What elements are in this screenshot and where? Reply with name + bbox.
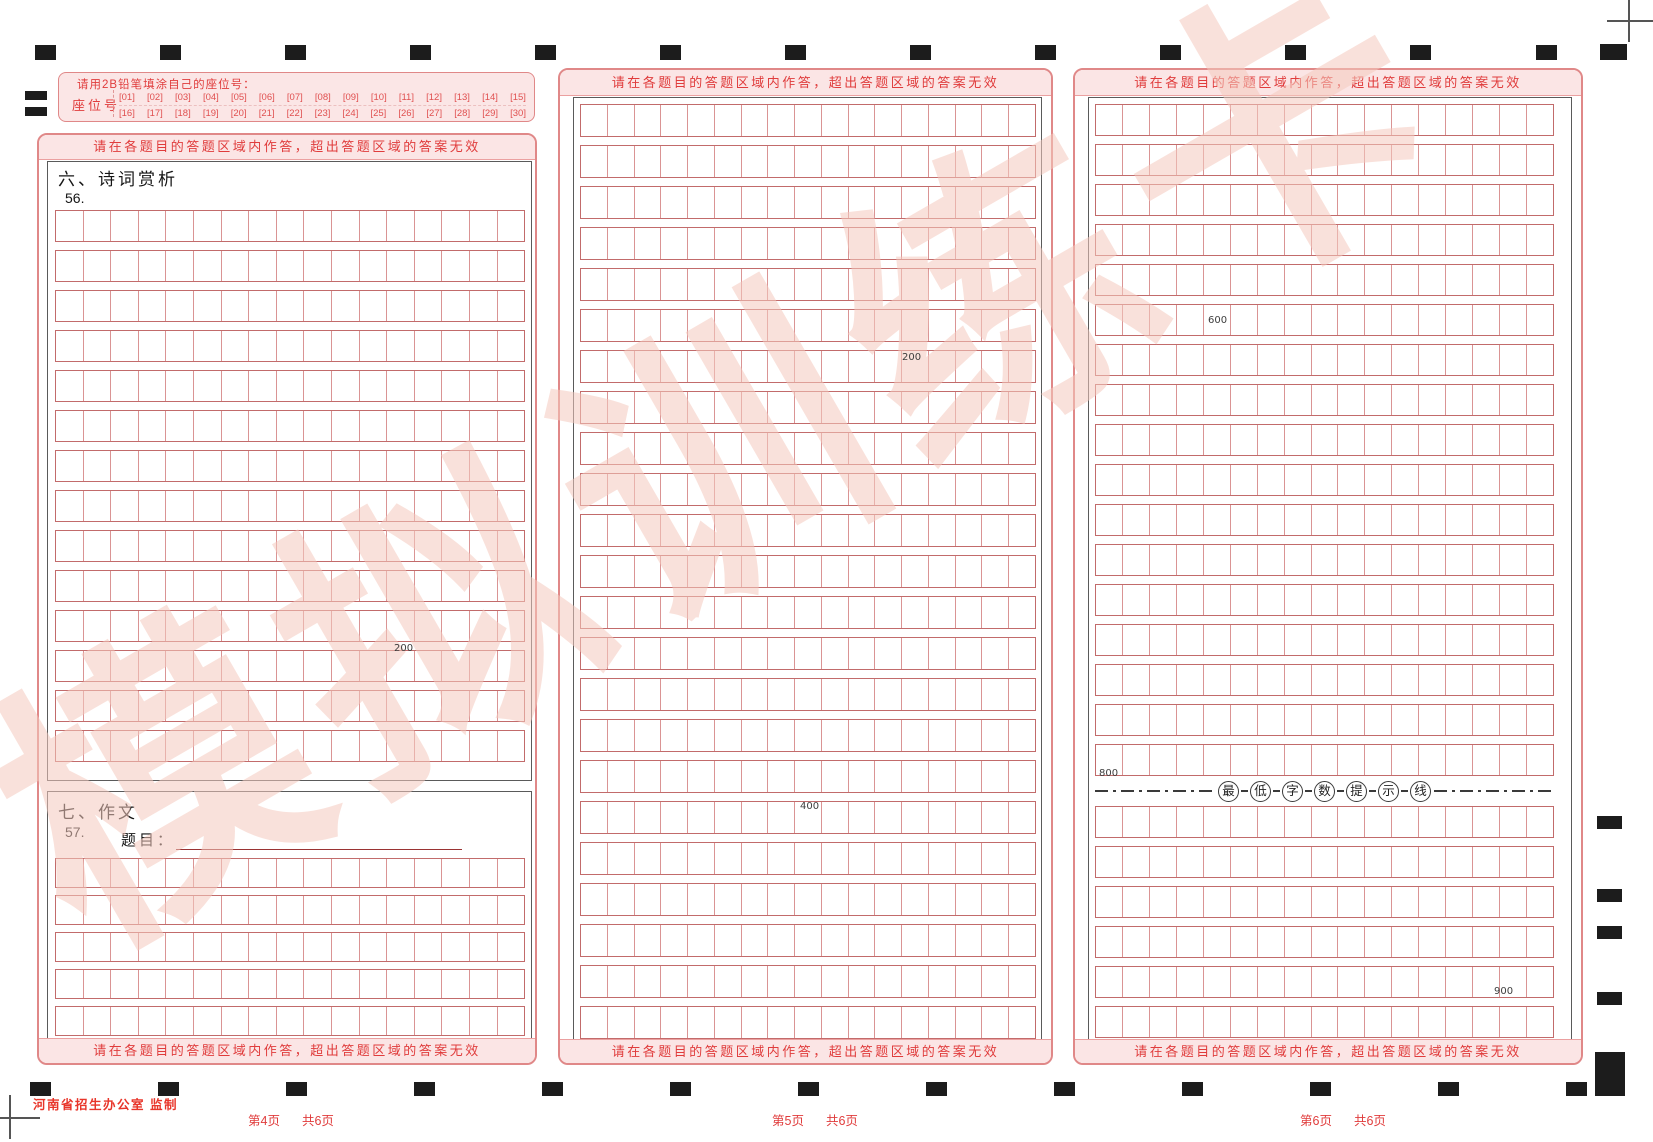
char-cell[interactable] [1231,505,1258,535]
char-cell[interactable] [415,970,443,998]
char-cell[interactable] [1527,265,1553,295]
char-cell[interactable] [1446,385,1473,415]
char-cell[interactable] [929,679,956,710]
char-cell[interactable] [387,896,415,924]
char-cell[interactable] [795,761,822,792]
char-cell[interactable] [929,310,956,341]
char-cell[interactable] [1096,887,1123,917]
char-cell[interactable] [849,843,876,874]
char-cell[interactable] [581,310,608,341]
char-cell[interactable] [608,105,635,136]
char-cell[interactable] [1150,185,1177,215]
char-cell[interactable] [304,531,332,561]
char-cell[interactable] [1285,847,1312,877]
char-cell[interactable] [902,925,929,956]
char-cell[interactable] [1500,345,1527,375]
char-cell[interactable] [982,269,1009,300]
char-cell[interactable] [688,556,715,587]
char-cell[interactable] [875,761,902,792]
char-cell[interactable] [1338,847,1365,877]
char-cell[interactable] [111,371,139,401]
char-cell[interactable] [982,392,1009,423]
char-cell[interactable] [849,228,876,259]
char-cell[interactable] [902,1007,929,1038]
char-cell[interactable] [222,211,250,241]
char-cell[interactable] [902,515,929,546]
char-cell[interactable] [1150,847,1177,877]
char-cell[interactable] [1009,925,1035,956]
char-cell[interactable] [956,515,983,546]
char-cell[interactable] [608,187,635,218]
char-cell[interactable] [1285,145,1312,175]
char-cell[interactable] [84,251,112,281]
char-cell[interactable] [875,679,902,710]
seat-bubble[interactable]: [05] [231,92,247,103]
char-cell[interactable] [661,474,688,505]
char-cell[interactable] [956,597,983,628]
char-cell[interactable] [1365,505,1392,535]
char-cell[interactable] [1150,807,1177,837]
char-cell[interactable] [1500,1007,1527,1037]
char-cell[interactable] [360,970,388,998]
char-cell[interactable] [139,859,167,887]
char-cell[interactable] [84,491,112,521]
char-cell[interactable] [1231,807,1258,837]
char-cell[interactable] [902,720,929,751]
char-cell[interactable] [1258,625,1285,655]
char-cell[interactable] [166,651,194,681]
char-cell[interactable] [1096,225,1123,255]
char-cell[interactable] [222,611,250,641]
char-cell[interactable] [742,843,769,874]
char-cell[interactable] [1096,625,1123,655]
char-cell[interactable] [1338,505,1365,535]
char-cell[interactable] [277,331,305,361]
char-cell[interactable] [84,411,112,441]
char-cell[interactable] [1258,745,1285,775]
char-cell[interactable] [742,310,769,341]
char-cell[interactable] [688,638,715,669]
char-cell[interactable] [849,146,876,177]
char-cell[interactable] [875,228,902,259]
char-cell[interactable] [581,556,608,587]
char-cell[interactable] [1365,807,1392,837]
char-cell[interactable] [56,251,84,281]
char-cell[interactable] [688,679,715,710]
char-cell[interactable] [84,896,112,924]
char-cell[interactable] [1150,585,1177,615]
char-cell[interactable] [1419,545,1446,575]
char-cell[interactable] [222,691,250,721]
char-cell[interactable] [956,105,983,136]
char-cell[interactable] [982,515,1009,546]
char-cell[interactable] [875,351,902,382]
char-cell[interactable] [795,228,822,259]
char-cell[interactable] [715,556,742,587]
char-cell[interactable] [1392,345,1419,375]
char-cell[interactable] [956,310,983,341]
char-cell[interactable] [982,802,1009,833]
char-cell[interactable] [387,611,415,641]
seat-bubble[interactable]: [19] [203,108,219,119]
char-cell[interactable] [1204,345,1231,375]
char-cell[interactable] [1419,625,1446,655]
char-cell[interactable] [249,859,277,887]
char-cell[interactable] [742,187,769,218]
char-cell[interactable] [387,331,415,361]
char-cell[interactable] [1446,847,1473,877]
char-cell[interactable] [56,651,84,681]
char-cell[interactable] [1500,265,1527,295]
char-cell[interactable] [139,331,167,361]
char-cell[interactable] [822,433,849,464]
char-cell[interactable] [166,251,194,281]
char-cell[interactable] [1312,585,1339,615]
char-cell[interactable] [498,331,525,361]
char-cell[interactable] [415,1007,443,1035]
char-cell[interactable] [1204,625,1231,655]
seat-bubble[interactable]: [07] [287,92,303,103]
char-cell[interactable] [1177,145,1204,175]
char-cell[interactable] [608,966,635,997]
char-cell[interactable] [139,731,167,761]
char-cell[interactable] [608,761,635,792]
char-cell[interactable] [795,146,822,177]
char-cell[interactable] [387,970,415,998]
char-cell[interactable] [332,491,360,521]
char-cell[interactable] [1231,1007,1258,1037]
char-cell[interactable] [1312,385,1339,415]
char-cell[interactable] [222,896,250,924]
char-cell[interactable] [1177,887,1204,917]
char-cell[interactable] [415,859,443,887]
char-cell[interactable] [1258,665,1285,695]
char-cell[interactable] [111,211,139,241]
char-cell[interactable] [360,211,388,241]
char-cell[interactable] [929,720,956,751]
seat-bubble[interactable]: [16] [119,108,135,119]
char-cell[interactable] [929,392,956,423]
char-cell[interactable] [715,228,742,259]
char-cell[interactable] [111,970,139,998]
seat-bubble[interactable]: [27] [426,108,442,119]
char-cell[interactable] [715,105,742,136]
char-cell[interactable] [304,896,332,924]
char-cell[interactable] [956,925,983,956]
char-cell[interactable] [111,411,139,441]
char-cell[interactable] [56,211,84,241]
char-cell[interactable] [387,1007,415,1035]
char-cell[interactable] [795,351,822,382]
char-cell[interactable] [875,638,902,669]
char-cell[interactable] [1338,305,1365,335]
char-cell[interactable] [795,925,822,956]
char-cell[interactable] [1338,927,1365,957]
char-cell[interactable] [360,1007,388,1035]
char-cell[interactable] [822,105,849,136]
char-cell[interactable] [139,896,167,924]
char-cell[interactable] [1500,305,1527,335]
char-cell[interactable] [1258,425,1285,455]
seat-bubble[interactable]: [09] [343,92,359,103]
seat-bubble[interactable]: [10] [371,92,387,103]
char-cell[interactable] [166,731,194,761]
char-cell[interactable] [1446,887,1473,917]
char-cell[interactable] [635,966,662,997]
char-cell[interactable] [982,720,1009,751]
char-cell[interactable] [56,371,84,401]
char-cell[interactable] [360,933,388,961]
char-cell[interactable] [1204,185,1231,215]
char-cell[interactable] [715,351,742,382]
char-cell[interactable] [902,187,929,218]
char-cell[interactable] [742,925,769,956]
char-cell[interactable] [1419,585,1446,615]
char-cell[interactable] [768,843,795,874]
char-cell[interactable] [442,211,470,241]
char-cell[interactable] [1123,927,1150,957]
char-cell[interactable] [742,966,769,997]
char-cell[interactable] [1446,1007,1473,1037]
char-cell[interactable] [661,966,688,997]
char-cell[interactable] [332,933,360,961]
char-cell[interactable] [1204,265,1231,295]
char-cell[interactable] [715,802,742,833]
char-cell[interactable] [111,933,139,961]
char-cell[interactable] [277,531,305,561]
char-cell[interactable] [1338,967,1365,997]
char-cell[interactable] [581,228,608,259]
char-cell[interactable] [1365,225,1392,255]
char-cell[interactable] [742,105,769,136]
char-cell[interactable] [1392,887,1419,917]
char-cell[interactable] [768,1007,795,1038]
char-cell[interactable] [1204,305,1231,335]
char-cell[interactable] [929,228,956,259]
char-cell[interactable] [1285,225,1312,255]
char-cell[interactable] [442,531,470,561]
seat-bubble[interactable]: [24] [343,108,359,119]
char-cell[interactable] [1177,625,1204,655]
char-cell[interactable] [415,571,443,601]
char-cell[interactable] [982,1007,1009,1038]
char-cell[interactable] [56,531,84,561]
char-cell[interactable] [1473,105,1500,135]
char-cell[interactable] [1096,807,1123,837]
char-cell[interactable] [581,269,608,300]
char-cell[interactable] [581,679,608,710]
char-cell[interactable] [442,691,470,721]
char-cell[interactable] [166,1007,194,1035]
char-cell[interactable] [194,691,222,721]
char-cell[interactable] [875,966,902,997]
char-cell[interactable] [1419,745,1446,775]
char-cell[interactable] [929,761,956,792]
char-cell[interactable] [902,269,929,300]
char-cell[interactable] [1231,545,1258,575]
char-cell[interactable] [661,351,688,382]
char-cell[interactable] [1312,265,1339,295]
char-cell[interactable] [1285,887,1312,917]
char-cell[interactable] [1096,1007,1123,1037]
char-cell[interactable] [822,679,849,710]
char-cell[interactable] [442,970,470,998]
char-cell[interactable] [1392,967,1419,997]
char-cell[interactable] [415,691,443,721]
char-cell[interactable] [470,651,498,681]
char-cell[interactable] [360,896,388,924]
char-cell[interactable] [1150,505,1177,535]
char-cell[interactable] [332,1007,360,1035]
char-cell[interactable] [1150,625,1177,655]
char-cell[interactable] [1527,665,1553,695]
seat-bubble[interactable]: [04] [203,92,219,103]
char-cell[interactable] [1231,185,1258,215]
char-cell[interactable] [715,310,742,341]
char-cell[interactable] [1150,1007,1177,1037]
char-cell[interactable] [1009,720,1035,751]
char-cell[interactable] [470,970,498,998]
char-cell[interactable] [360,611,388,641]
char-cell[interactable] [1473,745,1500,775]
char-cell[interactable] [1177,305,1204,335]
seat-bubble[interactable]: [17] [147,108,163,119]
char-cell[interactable] [1419,145,1446,175]
char-cell[interactable] [1365,705,1392,735]
char-cell[interactable] [249,251,277,281]
char-cell[interactable] [661,597,688,628]
char-cell[interactable] [1312,465,1339,495]
seat-bubble[interactable]: [21] [259,108,275,119]
char-cell[interactable] [1285,585,1312,615]
char-cell[interactable] [768,310,795,341]
char-cell[interactable] [56,291,84,321]
char-cell[interactable] [360,411,388,441]
char-cell[interactable] [1392,385,1419,415]
char-cell[interactable] [1204,1007,1231,1037]
char-cell[interactable] [1285,185,1312,215]
char-cell[interactable] [875,720,902,751]
char-cell[interactable] [608,310,635,341]
char-cell[interactable] [249,731,277,761]
char-cell[interactable] [608,843,635,874]
char-cell[interactable] [360,531,388,561]
char-cell[interactable] [1258,145,1285,175]
char-cell[interactable] [1177,807,1204,837]
char-cell[interactable] [1258,225,1285,255]
char-cell[interactable] [768,802,795,833]
char-cell[interactable] [415,251,443,281]
char-cell[interactable] [1177,185,1204,215]
char-cell[interactable] [1096,505,1123,535]
char-cell[interactable] [956,1007,983,1038]
char-cell[interactable] [768,966,795,997]
char-cell[interactable] [277,571,305,601]
char-cell[interactable] [1419,505,1446,535]
char-cell[interactable] [1096,265,1123,295]
char-cell[interactable] [1096,847,1123,877]
char-cell[interactable] [166,411,194,441]
char-cell[interactable] [1446,225,1473,255]
char-cell[interactable] [581,720,608,751]
char-cell[interactable] [581,966,608,997]
char-cell[interactable] [1365,967,1392,997]
char-cell[interactable] [304,411,332,441]
char-cell[interactable] [875,597,902,628]
char-cell[interactable] [1204,145,1231,175]
char-cell[interactable] [277,859,305,887]
char-cell[interactable] [849,761,876,792]
char-cell[interactable] [902,802,929,833]
char-cell[interactable] [194,531,222,561]
char-cell[interactable] [715,515,742,546]
char-cell[interactable] [715,720,742,751]
char-cell[interactable] [688,802,715,833]
char-cell[interactable] [956,433,983,464]
char-cell[interactable] [1338,265,1365,295]
char-cell[interactable] [715,966,742,997]
char-cell[interactable] [415,933,443,961]
char-cell[interactable] [84,451,112,481]
char-cell[interactable] [982,761,1009,792]
char-cell[interactable] [1312,625,1339,655]
char-cell[interactable] [304,1007,332,1035]
char-cell[interactable] [742,761,769,792]
char-cell[interactable] [277,731,305,761]
char-cell[interactable] [1231,705,1258,735]
char-cell[interactable] [1009,433,1035,464]
char-cell[interactable] [1285,545,1312,575]
char-cell[interactable] [1365,105,1392,135]
char-cell[interactable] [1009,228,1035,259]
char-cell[interactable] [387,731,415,761]
char-cell[interactable] [822,843,849,874]
char-cell[interactable] [956,761,983,792]
char-cell[interactable] [222,411,250,441]
char-cell[interactable] [768,105,795,136]
char-cell[interactable] [1473,145,1500,175]
char-cell[interactable] [956,351,983,382]
char-cell[interactable] [498,859,525,887]
char-cell[interactable] [387,531,415,561]
char-cell[interactable] [1285,705,1312,735]
char-cell[interactable] [332,411,360,441]
char-cell[interactable] [795,556,822,587]
char-cell[interactable] [1473,887,1500,917]
char-cell[interactable] [742,146,769,177]
char-cell[interactable] [415,451,443,481]
char-cell[interactable] [1009,761,1035,792]
char-cell[interactable] [929,146,956,177]
char-cell[interactable] [1419,105,1446,135]
char-cell[interactable] [1096,665,1123,695]
char-cell[interactable] [1096,705,1123,735]
char-cell[interactable] [222,731,250,761]
char-cell[interactable] [1312,665,1339,695]
char-cell[interactable] [982,884,1009,915]
char-cell[interactable] [470,1007,498,1035]
char-cell[interactable] [498,731,525,761]
char-cell[interactable] [581,105,608,136]
char-cell[interactable] [849,1007,876,1038]
seat-bubble[interactable]: [25] [370,108,386,119]
char-cell[interactable] [1123,505,1150,535]
char-cell[interactable] [1365,385,1392,415]
char-cell[interactable] [442,731,470,761]
char-cell[interactable] [608,515,635,546]
char-cell[interactable] [1150,745,1177,775]
char-cell[interactable] [222,291,250,321]
